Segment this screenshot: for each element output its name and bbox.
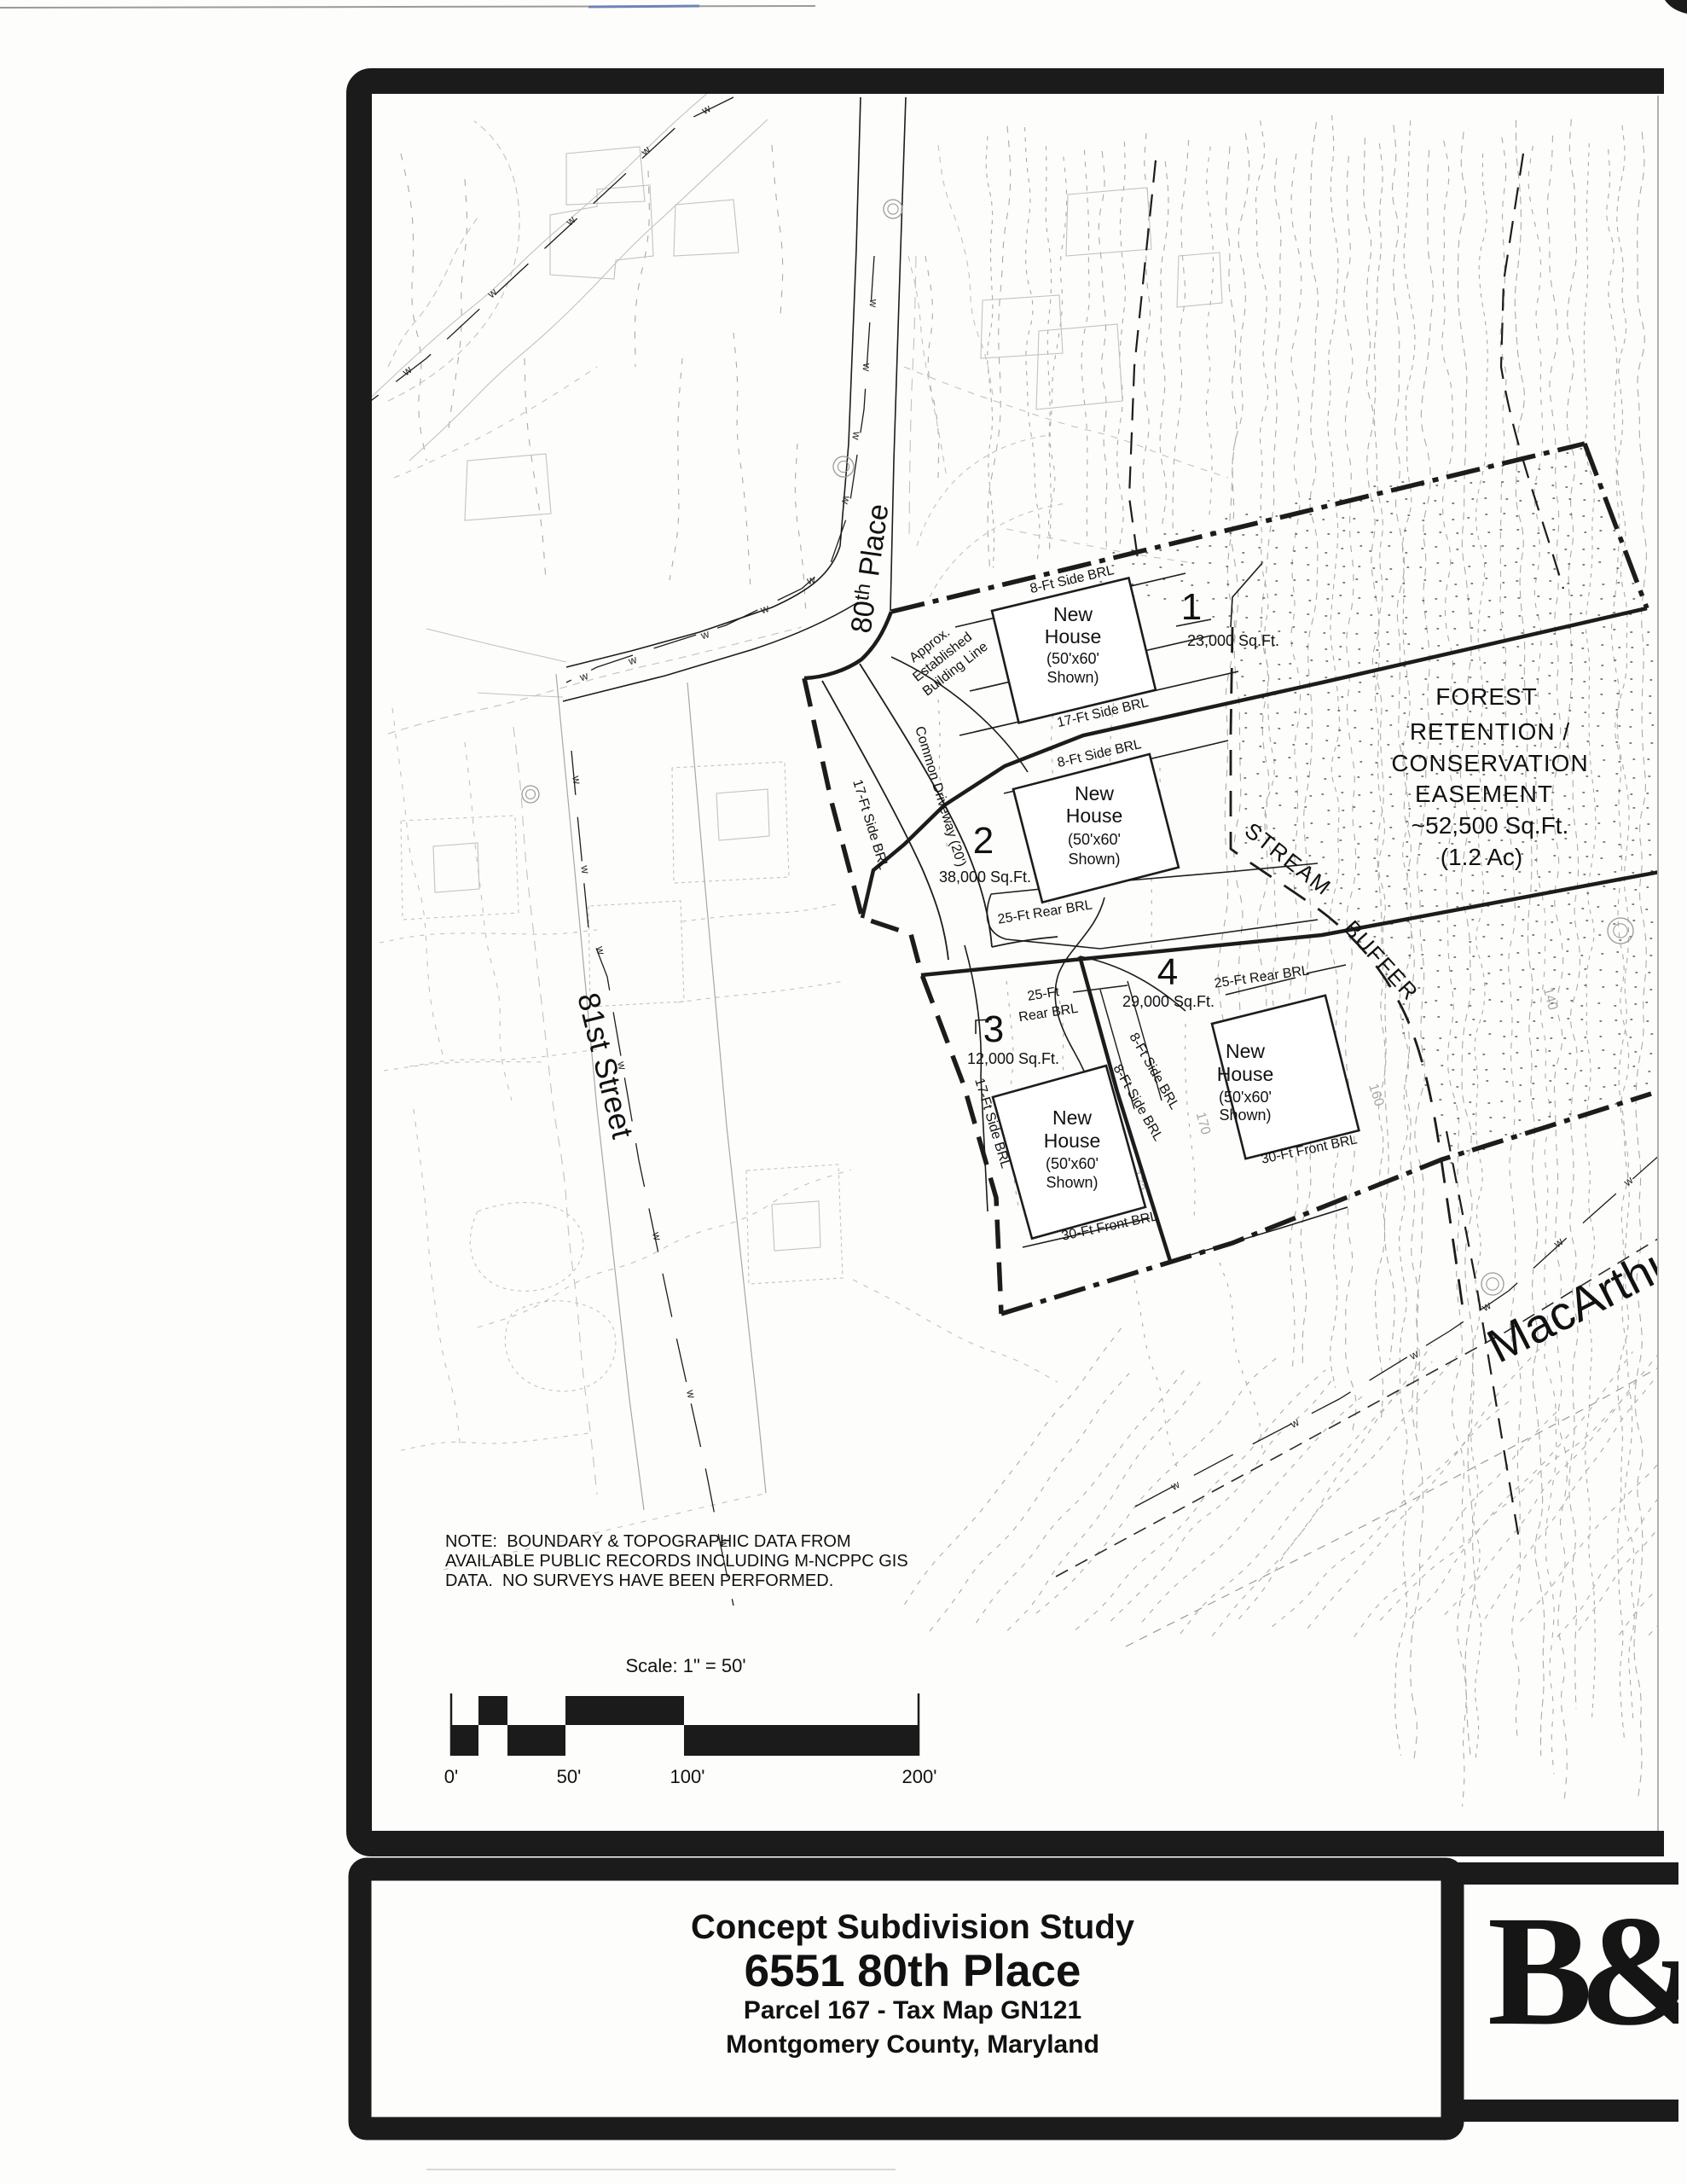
svg-text:w: w [867, 298, 881, 308]
svg-text:2: 2 [973, 820, 994, 862]
svg-text:Parcel 167 - Tax Map GN121: Parcel 167 - Tax Map GN121 [744, 1996, 1081, 2024]
svg-text:3: 3 [983, 1008, 1004, 1050]
svg-text:New: New [1226, 1040, 1265, 1062]
svg-text:AVAILABLE PUBLIC RECORDS INCLU: AVAILABLE PUBLIC RECORDS INCLUDING M-NCP… [445, 1552, 908, 1571]
svg-text:~52,500 Sq.Ft.: ~52,500 Sq.Ft. [1412, 812, 1568, 839]
svg-text:Scale: 1" = 50': Scale: 1" = 50' [625, 1655, 745, 1676]
svg-text:House: House [1044, 1130, 1100, 1152]
svg-text:Shown): Shown) [1046, 1174, 1098, 1191]
svg-text:EASEMENT: EASEMENT [1415, 781, 1553, 807]
svg-text:100': 100' [670, 1766, 705, 1787]
svg-text:House: House [1217, 1063, 1273, 1085]
svg-text:House: House [1066, 804, 1122, 827]
svg-text:New: New [1053, 603, 1093, 625]
svg-text:6551 80th Place: 6551 80th Place [745, 1946, 1081, 1996]
svg-text:w: w [861, 362, 874, 372]
svg-text:House: House [1045, 625, 1101, 648]
svg-text:23,000 Sq.Ft.: 23,000 Sq.Ft. [1187, 632, 1279, 649]
svg-text:(1.2 Ac): (1.2 Ac) [1441, 844, 1522, 870]
svg-text:Shown): Shown) [1046, 669, 1099, 686]
svg-text:200': 200' [902, 1766, 937, 1787]
svg-text:(50'x60': (50'x60' [1068, 831, 1121, 848]
svg-text:Shown): Shown) [1068, 851, 1120, 868]
svg-text:Concept Subdivision Study: Concept Subdivision Study [691, 1908, 1135, 1946]
svg-text:12,000 Sq.Ft.: 12,000 Sq.Ft. [967, 1050, 1059, 1067]
svg-text:B&B: B&B [1487, 1884, 1687, 2059]
svg-text:NOTE: BOUNDARY & TOPOGRAPHIC: NOTE: BOUNDARY & TOPOGRAPHIC DATA FROM [445, 1532, 851, 1551]
svg-text:CONSERVATION: CONSERVATION [1391, 750, 1588, 776]
svg-text:DATA. NO SURVEYS HAVE BEEN PE: DATA. NO SURVEYS HAVE BEEN PERFORMED. [445, 1571, 833, 1590]
svg-text:29,000 Sq.Ft.: 29,000 Sq.Ft. [1122, 993, 1215, 1010]
svg-text:(50'x60': (50'x60' [1219, 1089, 1272, 1106]
svg-text:(50'x60': (50'x60' [1046, 1155, 1099, 1172]
svg-text:Shown): Shown) [1219, 1107, 1271, 1124]
svg-text:New: New [1075, 782, 1114, 804]
svg-text:0': 0' [444, 1766, 458, 1787]
svg-text:New: New [1052, 1107, 1092, 1129]
svg-text:RETENTION /: RETENTION / [1410, 718, 1570, 745]
svg-text:1: 1 [1181, 586, 1202, 628]
svg-text:FOREST: FOREST [1435, 683, 1538, 710]
svg-text:Montgomery County, Maryland: Montgomery County, Maryland [726, 2030, 1099, 2059]
svg-text:4: 4 [1157, 951, 1178, 993]
svg-text:38,000 Sq.Ft.: 38,000 Sq.Ft. [939, 868, 1031, 886]
svg-text:50': 50' [557, 1766, 582, 1787]
svg-text:(50'x60': (50'x60' [1046, 650, 1099, 667]
